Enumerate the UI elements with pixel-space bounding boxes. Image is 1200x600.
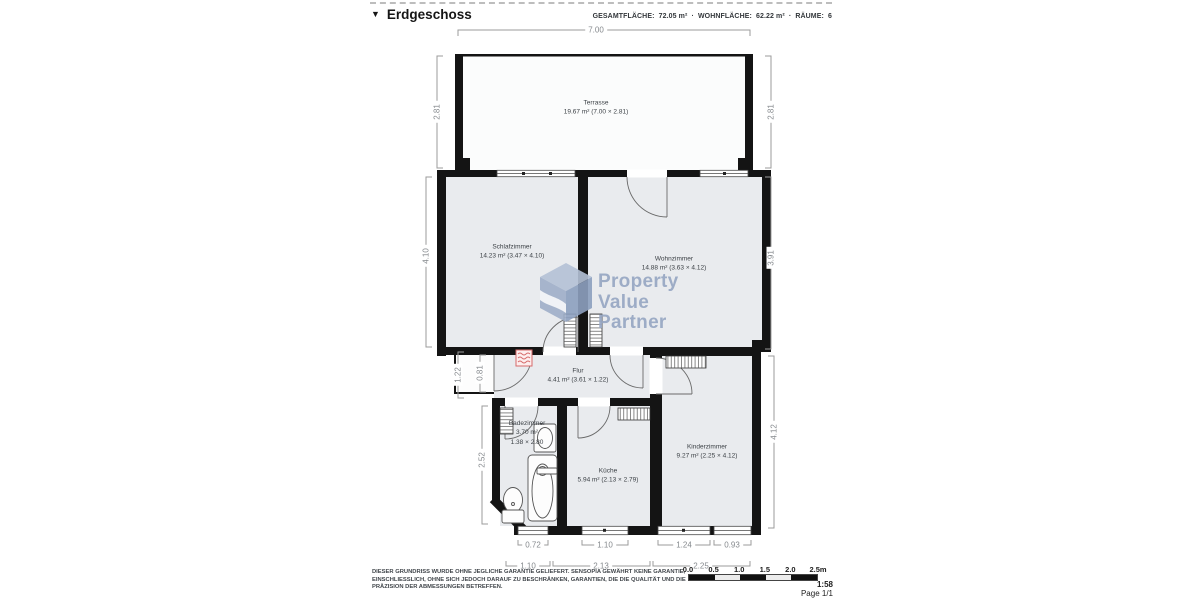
window [700,170,748,176]
room-name: Badezimmer [509,419,545,428]
dim-label-flur-left-inner: 0.81 [476,362,485,384]
room-label-kinderzimmer: Kinderzimmer 9.27 m² (2.25 × 4.12) [677,443,738,462]
room-detail: 4.41 m² (3.61 × 1.22) [548,376,609,385]
dim-label-schlafzimmer-left: 4.10 [422,245,431,267]
room-detail: 5.94 m² (2.13 × 2.79) [578,476,639,485]
scale-tick: 1.5 [760,565,770,574]
window [658,526,710,534]
bathtub-icon [528,455,557,521]
room-name: Flur [548,367,609,376]
dim-label-window: 0.72 [522,541,544,550]
scale-tick: 2.5m [809,565,826,574]
room-name: Küche [578,467,639,476]
window [582,526,628,534]
dim-label-window: 1.24 [673,541,695,550]
room-name: Wohnzimmer [642,255,707,264]
window [714,526,751,534]
dim-label-window: 0.93 [721,541,743,550]
dim-label-wohnzimmer-right: 3.91 [767,247,776,269]
room-label-flur: Flur 4.41 m² (3.61 × 1.22) [548,367,609,386]
room-name: Terrasse [564,99,629,108]
room-detail: 3.70 m² [509,428,545,437]
radiator [618,408,650,420]
page-indicator: Page 1/1 [688,589,833,598]
dim-label-flur-left: 1.22 [454,364,463,386]
room-label-schlafzimmer: Schlafzimmer 14.23 m² (3.47 × 4.10) [480,243,545,262]
room-detail: 19.67 m² (7.00 × 2.81) [564,108,629,117]
room-label-kueche: Küche 5.94 m² (2.13 × 2.79) [578,467,639,486]
room-name: Schlafzimmer [480,243,545,252]
window [518,526,548,534]
dim-label-terrace-left: 2.81 [433,101,442,123]
watermark-text: Property Value Partner [598,272,679,334]
toilet-icon [502,488,524,524]
dim-label-top-width: 7.00 [585,26,607,35]
scale-tick: 2.0 [785,565,795,574]
room-detail: 1.38 × 2.80 [509,438,545,447]
scale-tick: 0.5 [708,565,718,574]
radiator [666,356,706,368]
dim-label-terrace-right: 2.81 [767,101,776,123]
scale-tick: 1.0 [734,565,744,574]
dim-label-kinderzimmer-right: 4.12 [770,421,779,443]
scale-bar: 0.0 0.5 1.0 1.5 2.0 2.5m 1:58 Page 1/1 [688,565,834,597]
room-label-badezimmer: Badezimmer 3.70 m² 1.38 × 2.80 [509,419,545,447]
dim-label-badezimmer-left: 2.52 [478,449,487,471]
room-label-terrasse: Terrasse 19.67 m² (7.00 × 2.81) [564,99,629,118]
room-detail: 9.27 m² (2.25 × 4.12) [677,452,738,461]
window [497,170,575,176]
radiator-red-icon [516,350,532,366]
dim-label-window: 1.10 [594,541,616,550]
scale-tick: 0.0 [683,565,693,574]
room-detail: 14.23 m² (3.47 × 4.10) [480,252,545,261]
scale-ratio: 1:58 [688,580,833,589]
disclaimer-text: DIESER GRUNDRISS WURDE OHNE JEGLICHE GAR… [372,569,688,592]
floorplan-page: ▼ Erdgeschoss GESAMTFLÄCHE: 72.05 m² · W… [0,0,1200,600]
room-name: Kinderzimmer [677,443,738,452]
